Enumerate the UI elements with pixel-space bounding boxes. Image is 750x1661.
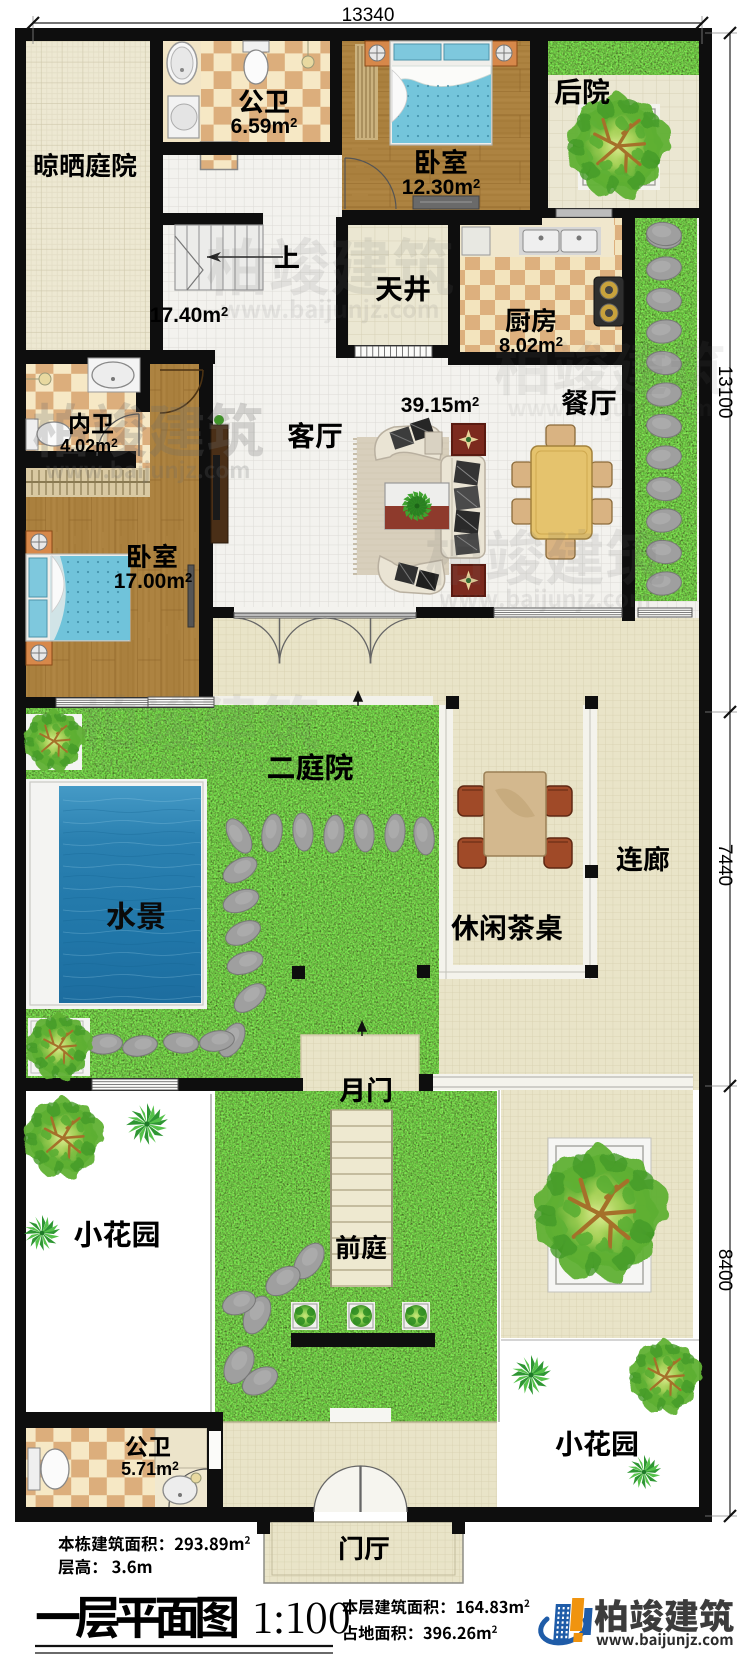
- svg-text:13340: 13340: [342, 5, 395, 26]
- svg-text:7440: 7440: [714, 844, 735, 886]
- svg-text:39.15m2: 39.15m2: [401, 394, 479, 417]
- svg-text:4.02m2: 4.02m2: [60, 436, 118, 456]
- svg-text:8400: 8400: [714, 1249, 735, 1291]
- svg-text:12.30m2: 12.30m2: [402, 176, 480, 199]
- svg-text:13100: 13100: [714, 366, 735, 419]
- svg-text:17.00m2: 17.00m2: [114, 570, 192, 593]
- svg-text:17.40m2: 17.40m2: [150, 304, 228, 327]
- svg-text:8.02m2: 8.02m2: [499, 334, 563, 357]
- svg-text:6.59m2: 6.59m2: [231, 115, 298, 138]
- svg-text:5.71m2: 5.71m2: [121, 1459, 179, 1479]
